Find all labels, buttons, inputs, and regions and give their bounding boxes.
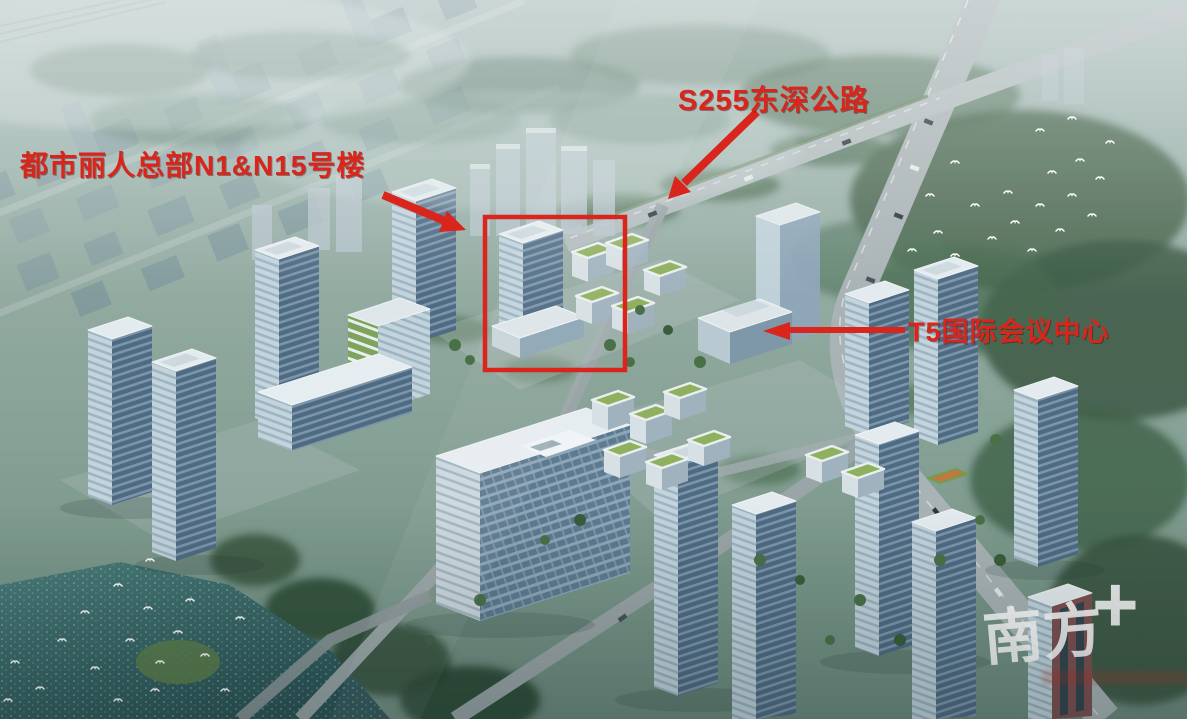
aerial-scene: 都市丽人总部N1&N15号楼 S255东深公路 T5国际会议中心 南方 + <box>0 0 1187 719</box>
aerial-render-screenshot: 都市丽人总部N1&N15号楼 S255东深公路 T5国际会议中心 南方 + <box>0 0 1187 719</box>
vignette-overlay <box>0 0 1187 719</box>
